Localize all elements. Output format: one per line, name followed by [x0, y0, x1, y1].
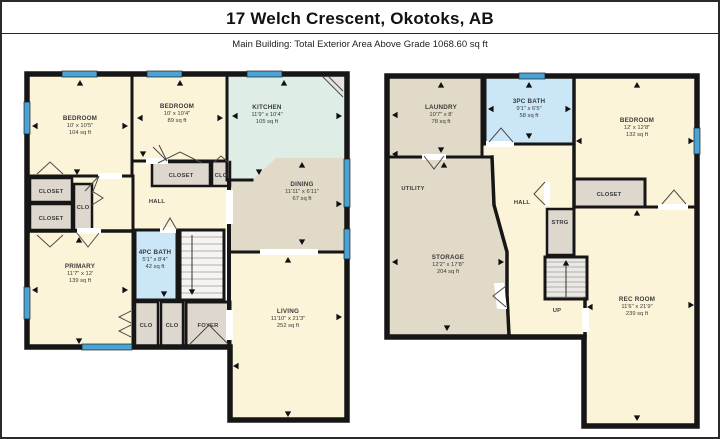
living-dims: 11'10" x 21'3" — [271, 316, 306, 322]
bedroom2-dims: 10' x 10'4" — [164, 111, 191, 117]
stairs-treads — [180, 235, 224, 295]
utility-label: UTILITY — [401, 186, 424, 192]
closet-a-label: CLOSET — [39, 189, 64, 195]
rec-name: REC ROOM — [619, 296, 655, 303]
bath4pc-dims: 5'1" x 8'4" — [142, 257, 167, 263]
dining-name: DINING — [290, 181, 313, 188]
laundry-area: 78 sq ft — [431, 119, 450, 125]
clo-d-label: CLO — [166, 323, 179, 329]
laundry-name: LAUNDRY — [425, 104, 458, 111]
kitchen-name: KITCHEN — [252, 104, 282, 111]
room-living — [230, 252, 347, 420]
bath4pc-area: 42 sq ft — [145, 264, 164, 270]
closet-label: CLOSET — [597, 192, 622, 198]
page-subtitle: Main Building: Total Exterior Area Above… — [2, 39, 718, 50]
primary-area: 139 sq ft — [69, 278, 92, 284]
laundry-dims: 10'7" x 8' — [429, 112, 452, 118]
bedroom2-area: 89 sq ft — [167, 118, 186, 124]
bedroom1-area: 104 sq ft — [69, 130, 92, 136]
bath4pc-name: 4PC BATH — [139, 249, 172, 256]
bedroom2-name: BEDROOM — [160, 103, 194, 110]
closet-c-label: CLOSET — [169, 173, 194, 179]
rec-dims: 11'6" x 21'9" — [621, 304, 652, 310]
bath3pc-name: 3PC BATH — [513, 98, 546, 105]
primary-dims: 11'7" x 12' — [67, 271, 93, 277]
foyer-label: FOYER — [198, 323, 220, 329]
storage-name: STORAGE — [432, 254, 464, 261]
strg-label: STRG — [552, 220, 569, 226]
page-title: 17 Welch Crescent, Okotoks, AB — [2, 9, 718, 29]
bath3pc-area: 58 sq ft — [519, 113, 538, 119]
bedroom1-name: BEDROOM — [63, 115, 97, 122]
hall-label: HALL — [514, 200, 531, 206]
dining-area: 67 sq ft — [292, 196, 311, 202]
dining-dims: 11'11" x 6'11" — [285, 189, 319, 195]
primary-name: PRIMARY — [65, 263, 96, 270]
closet-b-label: CLOSET — [39, 216, 64, 222]
floorplan-page: 17 Welch Crescent, Okotoks, AB Main Buil… — [0, 0, 720, 439]
rec-area: 239 sq ft — [626, 311, 649, 317]
kitchen-area: 105 sq ft — [256, 119, 279, 125]
room-utility-storage — [387, 157, 509, 335]
title-divider — [2, 33, 718, 34]
bedroom-name: BEDROOM — [620, 117, 654, 124]
bedroom-dims: 12' x 12'8" — [624, 125, 651, 131]
main-floor-plan: BEDROOM 10' x 10'5" 104 sq ft BEDROOM 10… — [22, 64, 362, 426]
bedroom1-dims: 10' x 10'5" — [67, 123, 94, 129]
hall-label: HALL — [149, 199, 166, 205]
clo-a-label: CLO — [77, 205, 90, 211]
clo-c-label: CLO — [140, 323, 153, 329]
room-strg — [547, 209, 574, 255]
room-primary — [27, 232, 132, 349]
storage-dims: 12'2" x 17'8" — [432, 262, 464, 268]
living-area: 252 sq ft — [277, 323, 300, 329]
clo-b-label: CLO — [215, 173, 228, 179]
up-label: UP — [553, 308, 561, 314]
basement-floor-plan: LAUNDRY 10'7" x 8' 78 sq ft 3PC BATH 9'1… — [382, 64, 712, 432]
bedroom-area: 132 sq ft — [626, 132, 649, 138]
bath3pc-dims: 9'1" x 6'5" — [516, 106, 541, 112]
kitchen-dims: 11'9" x 10'4" — [251, 112, 282, 118]
living-name: LIVING — [277, 308, 299, 315]
storage-area: 204 sq ft — [437, 269, 460, 275]
